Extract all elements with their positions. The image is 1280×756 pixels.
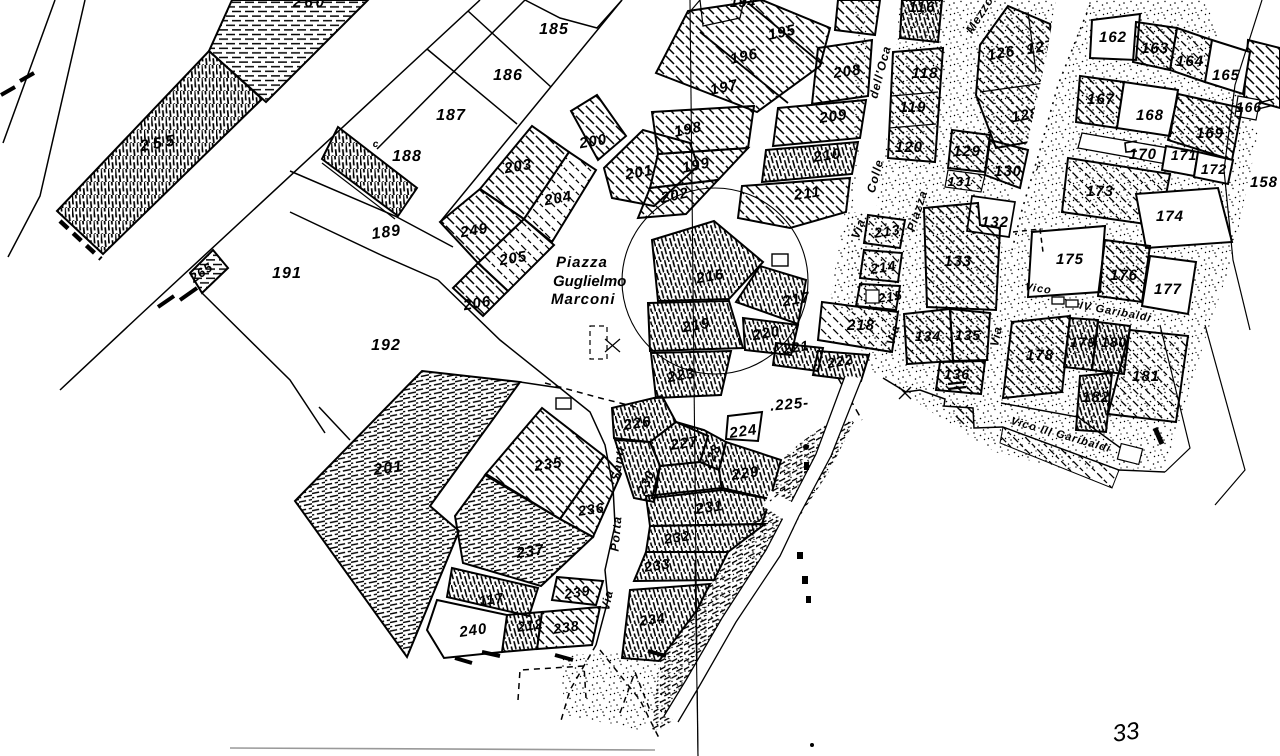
svg-text:191: 191 [272, 265, 302, 282]
svg-text:131: 131 [948, 174, 973, 189]
svg-text:136: 136 [944, 366, 970, 382]
svg-text:172: 172 [1201, 161, 1227, 177]
svg-text:129: 129 [953, 143, 981, 160]
svg-text:163: 163 [1141, 40, 1169, 57]
svg-text:168: 168 [1136, 107, 1164, 124]
svg-text:119: 119 [900, 99, 927, 116]
svg-text:164: 164 [1176, 53, 1204, 70]
svg-text:188: 188 [392, 148, 422, 165]
svg-text:162: 162 [1099, 29, 1127, 46]
svg-text:187: 187 [436, 107, 466, 124]
svg-text:260: 260 [292, 0, 327, 11]
svg-text:130: 130 [994, 163, 1022, 180]
svg-text:178: 178 [1026, 347, 1054, 364]
svg-text:185: 185 [539, 21, 569, 38]
svg-text:176: 176 [1110, 267, 1138, 284]
svg-text:135: 135 [955, 327, 981, 343]
svg-text:167: 167 [1087, 91, 1115, 108]
svg-text:120: 120 [895, 139, 923, 156]
svg-text:181: 181 [1132, 368, 1160, 385]
svg-text:186: 186 [493, 67, 523, 84]
svg-text:134: 134 [915, 328, 941, 344]
svg-text:177: 177 [1154, 281, 1182, 298]
svg-text:c: c [373, 139, 380, 150]
svg-text:Marconi: Marconi [551, 291, 616, 308]
svg-text:33: 33 [1111, 717, 1142, 748]
svg-text:169: 169 [1196, 125, 1224, 142]
svg-text:180: 180 [1101, 334, 1127, 350]
svg-text:171: 171 [1171, 147, 1197, 163]
svg-text:Piazza: Piazza [556, 254, 608, 271]
svg-text:158: 158 [1250, 174, 1278, 191]
svg-text:173: 173 [1086, 183, 1114, 200]
svg-text:175: 175 [1056, 251, 1084, 268]
svg-text:170: 170 [1129, 146, 1157, 163]
svg-text:182: 182 [1082, 389, 1110, 406]
svg-text:179: 179 [1070, 334, 1096, 350]
svg-text:.225-: .225- [769, 394, 810, 414]
svg-text:192: 192 [371, 337, 401, 354]
svg-text:Guglielmo: Guglielmo [553, 273, 626, 290]
svg-text:133: 133 [944, 253, 972, 270]
svg-text:218: 218 [846, 317, 875, 334]
svg-text:116: 116 [909, 0, 936, 16]
svg-text:118: 118 [912, 65, 939, 82]
svg-text:174: 174 [1156, 208, 1184, 225]
